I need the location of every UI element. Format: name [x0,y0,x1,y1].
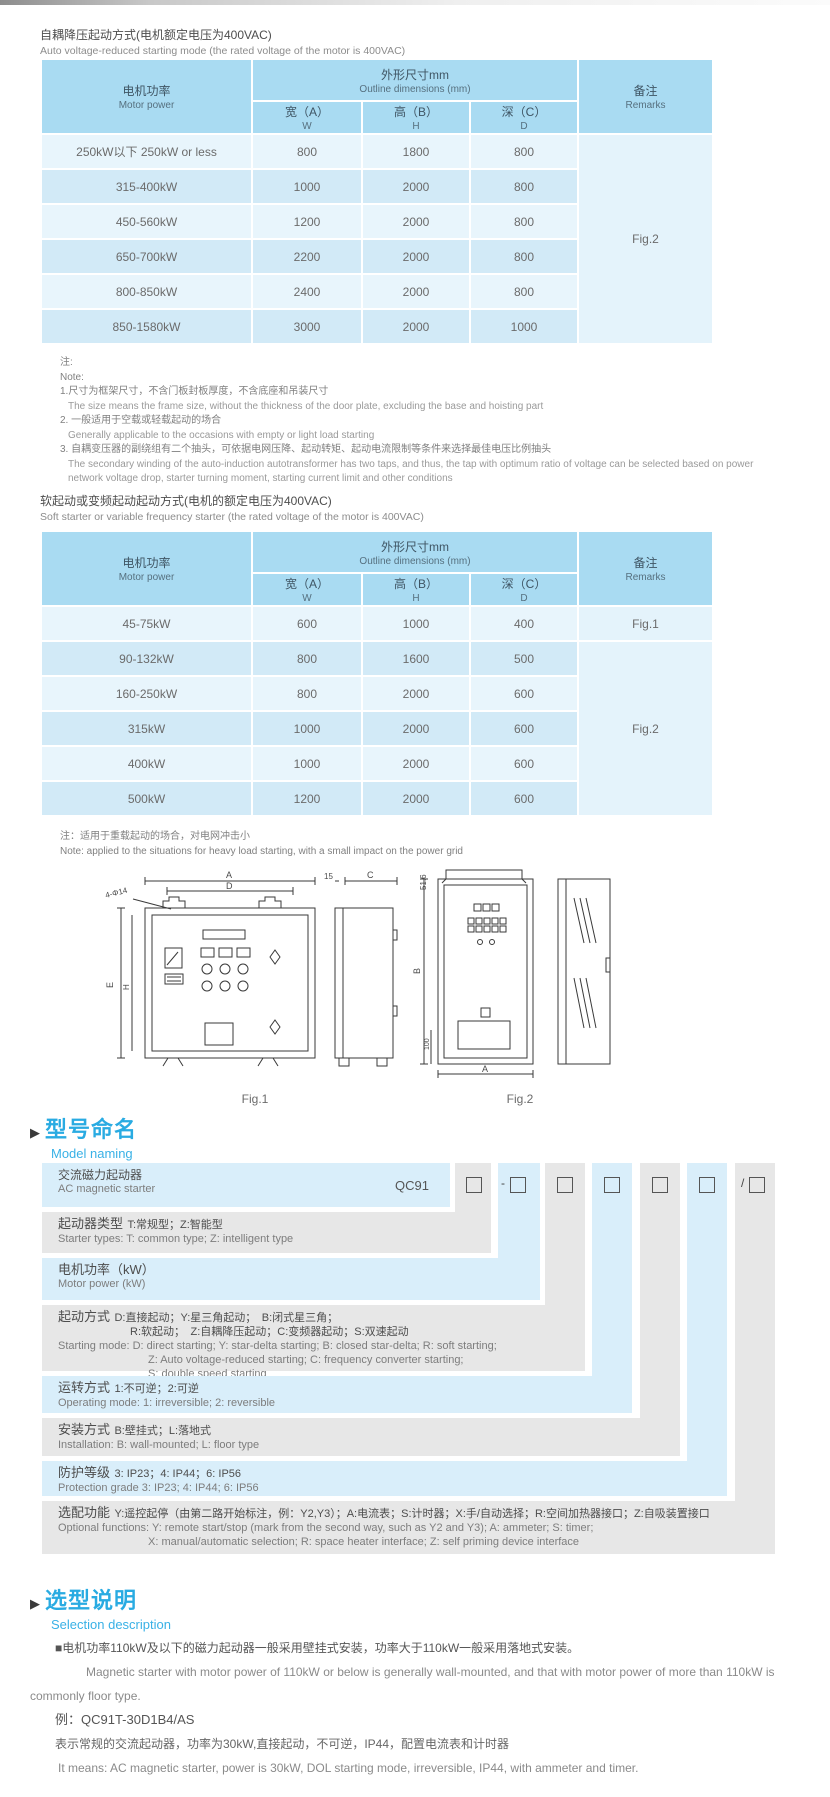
code-box-5 [652,1177,668,1193]
fig2-dim-b-label: B [412,968,422,974]
table-cell-h: 1000 [363,607,469,640]
operating-mode-en: Operating mode: 1: irreversible; 2: reve… [58,1396,632,1410]
table-cell-w: 1000 [253,747,361,780]
header-width-cn: 宽（A） [285,575,329,592]
section2-title: 软起动或变频起动起动方式(电机的额定电压为400VAC) Soft starte… [40,492,424,523]
starting-mode-en2: Z: Auto voltage-reduced starting; C: fre… [148,1353,585,1367]
header-outline-en: Outline dimensions (mm) [359,84,470,95]
auto-reduced-dimensions-table: 电机功率 Motor power 外形尺寸mm Outline dimensio… [42,60,712,343]
starting-mode-en1: Starting mode: D: direct starting; Y: st… [58,1339,585,1353]
table-cell-d: 600 [471,747,577,780]
note1-item2-en: Generally applicable to the occasions wi… [60,429,760,444]
section2-title-cn: 软起动或变频起动起动方式(电机的额定电压为400VAC) [40,492,424,509]
header-outline-en: Outline dimensions (mm) [359,556,470,567]
product-name-cn: 交流磁力起动器 [58,1168,450,1182]
starter-type-en: Starter types: T: common type; Z: intell… [58,1232,491,1246]
table2-remark-fig1: Fig.1 [579,607,712,640]
protection-grade-en: Protection grade 3: IP23; 4: IP44; 6: IP… [58,1481,727,1495]
selection-example-cn: 表示常规的交流起动器，功率为30kW,直接起动，不可逆，IP44，配置电流表和计… [55,1732,802,1756]
fig2-dim-a-label: A [482,1064,488,1074]
header-remarks: 备注 Remarks [579,60,712,133]
fig1-caption: Fig.1 [200,1092,310,1106]
table-cell-h: 2000 [363,205,469,238]
installation-en: Installation: B: wall-mounted; L: floor … [58,1438,680,1452]
optional-functions-en1: Optional functions: Y: remote start/stop… [58,1521,775,1535]
table-cell-w: 2400 [253,275,361,308]
starter-type-label: 起动器类型 [58,1216,123,1231]
selection-p1-en: Magnetic starter with motor power of 110… [30,1660,802,1708]
table-cell-d: 800 [471,275,577,308]
table-cell-power: 850-1580kW [42,310,251,343]
section1-title-en: Auto voltage-reduced starting mode (the … [40,45,405,57]
table-cell-power: 90-132kW [42,642,251,675]
table-cell-w: 1200 [253,782,361,815]
header-remarks: 备注 Remarks [579,532,712,605]
header-height: 高（B） H [363,102,469,133]
naming-row-product: 交流磁力起动器 AC magnetic starter [42,1163,450,1207]
code-box-3 [557,1177,573,1193]
table-cell-d: 600 [471,712,577,745]
note1-item1-en: The size means the frame size, without t… [60,400,760,415]
table-cell-w: 1000 [253,170,361,203]
optional-functions-label: 选配功能 [58,1505,110,1520]
table-cell-d: 800 [471,135,577,168]
header-depth-cn: 深（C） [502,103,547,120]
table-cell-h: 2000 [363,275,469,308]
selection-heading: ▶选型说明 Selection description [30,1583,171,1632]
fig1-dim-d-label: D [226,881,233,891]
fig2-dim-100-label: 100 [424,1038,431,1050]
table-cell-h: 1600 [363,642,469,675]
table-cell-h: 2000 [363,747,469,780]
naming-row-optional-functions: 选配功能 Y:遥控起停（由第二路开始标注，例：Y2,Y3）；A:电流表；S:计时… [42,1501,775,1554]
fig1-dim-c-label: C [367,870,374,880]
installation-desc: B:壁挂式；L:落地式 [114,1425,211,1437]
header-outline-cn: 外形尺寸mm [381,538,449,555]
base-code: QC91 [395,1178,429,1193]
code-col-7-stripe [735,1163,775,1554]
table1-remark-fig2: Fig.2 [579,135,712,343]
table-cell-h: 2000 [363,240,469,273]
starter-type-desc: T:常规型；Z:智能型 [127,1219,222,1231]
fig2-floor-cabinet-drawing: 51.6 B 100 A [408,858,638,1086]
fig1-dim-a-label: A [226,870,232,880]
header-width-en: W [302,593,311,604]
installation-label: 安装方式 [58,1422,110,1437]
header-height-cn: 高（B） [394,575,438,592]
table-cell-h: 2000 [363,310,469,343]
table-cell-h: 2000 [363,782,469,815]
fig1-wall-mounted-drawing: A D 4-Φ14 E H 15 C [105,868,405,1080]
table-cell-w: 2200 [253,240,361,273]
header-motor-power-cn: 电机功率 [122,82,170,99]
table-cell-d: 800 [471,240,577,273]
note1-item2-cn: 2. 一般适用于空载或轻载起动的场合 [60,414,760,429]
section1-title: 自耦降压起动方式(电机额定电压为400VAC) Auto voltage-red… [40,26,405,57]
note1-en-label: Note: [60,371,760,386]
catalog-page: 自耦降压起动方式(电机额定电压为400VAC) Auto voltage-red… [0,0,830,1797]
header-outline: 外形尺寸mm Outline dimensions (mm) [253,532,577,572]
fig1-dim-e-label: E [105,982,115,988]
table-cell-power: 800-850kW [42,275,251,308]
table-cell-power: 315-400kW [42,170,251,203]
table-cell-w: 600 [253,607,361,640]
section-arrow-icon: ▶ [30,1596,40,1611]
selection-example-label: 例：QC91T-30D1B4/AS [55,1708,802,1732]
fig1-holes-label: 4-Φ14 [105,886,129,900]
table-cell-d: 1000 [471,310,577,343]
starting-mode-desc2: R:软起动； Z:自耦降压起动；C:变频器起动；S:双速起动 [130,1325,585,1339]
table-cell-w: 1200 [253,205,361,238]
selection-example-en: It means: AC magnetic starter, power is … [58,1756,802,1780]
table-cell-d: 600 [471,782,577,815]
table-cell-h: 2000 [363,712,469,745]
selection-body: ■电机功率110kW及以下的磁力起动器一般采用壁挂式安装，功率大于110kW一般… [30,1636,802,1780]
fig1-dim-h-label: H [122,984,131,990]
header-outline: 外形尺寸mm Outline dimensions (mm) [253,60,577,100]
header-height-en: H [412,593,419,604]
header-width-cn: 宽（A） [285,103,329,120]
motor-power-en: Motor power (kW) [58,1277,540,1291]
table-cell-h: 2000 [363,170,469,203]
header-depth-cn: 深（C） [502,575,547,592]
starting-mode-desc1: D:直接起动；Y:星三角起动； B:闭式星三角； [114,1312,338,1324]
protection-grade-label: 防护等级 [58,1465,110,1480]
fig1-dim-15-label: 15 [324,872,333,881]
table-cell-d: 500 [471,642,577,675]
table-cell-h: 2000 [363,677,469,710]
code-box-7 [749,1177,765,1193]
note1-item3-cn: 3. 自耦变压器的副绕组有二个抽头，可依据电网压降、起动转矩、起动电流限制等条件… [60,443,760,458]
table-cell-h: 1800 [363,135,469,168]
motor-power-label: 电机功率（kW） [58,1263,540,1277]
table-cell-w: 3000 [253,310,361,343]
header-remarks-en: Remarks [625,100,665,111]
section-arrow-icon: ▶ [30,1125,40,1140]
naming-row-operating-mode: 运转方式 1:不可逆；2:可逆 Operating mode: 1: irrev… [42,1376,632,1413]
code-box-2 [510,1177,526,1193]
table2-remark-fig2: Fig.2 [579,642,712,815]
table-cell-d: 400 [471,607,577,640]
code-col-6-stripe [687,1163,727,1496]
optional-functions-en2: X: manual/automatic selection; R: space … [148,1535,775,1549]
naming-row-installation: 安装方式 B:壁挂式；L:落地式 Installation: B: wall-m… [42,1418,680,1456]
header-depth: 深（C） D [471,102,577,133]
table-cell-power: 450-560kW [42,205,251,238]
model-naming-heading: ▶型号命名 Model naming [30,1112,137,1161]
header-motor-power-en: Motor power [119,572,175,583]
selection-p1-cn: ■电机功率110kW及以下的磁力起动器一般采用壁挂式安装，功率大于110kW一般… [55,1636,802,1660]
selection-title-en: Selection description [51,1617,171,1632]
naming-row-starter-type: 起动器类型 T:常规型；Z:智能型 Starter types: T: comm… [42,1212,491,1253]
header-height: 高（B） H [363,574,469,605]
naming-row-protection-grade: 防护等级 3: IP23；4: IP44；6: IP56 Protection … [42,1461,727,1496]
header-depth: 深（C） D [471,574,577,605]
table-cell-w: 800 [253,677,361,710]
table-cell-power: 400kW [42,747,251,780]
header-remarks-cn: 备注 [633,82,657,99]
header-motor-power: 电机功率 Motor power [42,60,251,133]
section1-title-cn: 自耦降压起动方式(电机额定电压为400VAC) [40,26,405,43]
table-cell-power: 650-700kW [42,240,251,273]
table-cell-power: 250kW以下 250kW or less [42,135,251,168]
section2-title-en: Soft starter or variable frequency start… [40,511,424,523]
header-height-en: H [412,121,419,132]
header-width: 宽（A） W [253,102,361,133]
table-cell-power: 45-75kW [42,607,251,640]
table-cell-power: 500kW [42,782,251,815]
table-cell-d: 600 [471,677,577,710]
code-col-5-stripe [640,1163,680,1456]
header-motor-power-en: Motor power [119,100,175,111]
note-table1: 注: Note: 1.尺寸为框架尺寸，不含门板封板厚度，不含底座和吊装尺寸 Th… [60,356,760,487]
starting-mode-label: 起动方式 [58,1309,110,1324]
note1-item1-cn: 1.尺寸为框架尺寸，不含门板封板厚度，不含底座和吊装尺寸 [60,385,760,400]
operating-mode-desc: 1:不可逆；2:可逆 [114,1383,198,1395]
fig2-caption: Fig.2 [465,1092,575,1106]
code-dash: - [501,1176,505,1190]
code-box-4 [604,1177,620,1193]
optional-functions-desc: Y:遥控起停（由第二路开始标注，例：Y2,Y3）；A:电流表；S:计时器；X:手… [114,1508,709,1520]
header-depth-en: D [520,121,527,132]
table-cell-d: 800 [471,205,577,238]
header-remarks-cn: 备注 [633,554,657,571]
table-cell-w: 800 [253,135,361,168]
table-cell-power: 315kW [42,712,251,745]
model-naming-title-cn: 型号命名 [45,1117,137,1142]
header-motor-power: 电机功率 Motor power [42,532,251,605]
code-slash: / [741,1176,744,1190]
note1-cn-label: 注: [60,356,760,371]
table-cell-w: 800 [253,642,361,675]
naming-row-motor-power: 电机功率（kW） Motor power (kW) [42,1258,540,1300]
header-motor-power-cn: 电机功率 [122,554,170,571]
selection-title-cn: 选型说明 [45,1588,137,1613]
page-top-shadow [0,0,830,5]
header-width-en: W [302,121,311,132]
model-naming-table: 交流磁力起动器 AC magnetic starter QC91 - / 起动器… [42,1163,775,1554]
header-height-cn: 高（B） [394,103,438,120]
operating-mode-label: 运转方式 [58,1380,110,1395]
table-cell-w: 1000 [253,712,361,745]
header-outline-cn: 外形尺寸mm [381,66,449,83]
naming-row-starting-mode: 起动方式 D:直接起动；Y:星三角起动； B:闭式星三角； R:软起动； Z:自… [42,1305,585,1371]
protection-grade-desc: 3: IP23；4: IP44；6: IP56 [114,1468,241,1480]
note2-cn: 注：适用于重载起动的场合，对电网冲击小 [60,830,760,845]
header-depth-en: D [520,593,527,604]
product-name-en: AC magnetic starter [58,1182,450,1196]
note2-en: Note: applied to the situations for heav… [60,845,760,860]
code-box-1 [466,1177,482,1193]
model-naming-title-en: Model naming [51,1146,137,1161]
table-cell-power: 160-250kW [42,677,251,710]
code-box-6 [699,1177,715,1193]
note1-item3-en: The secondary winding of the auto-induct… [60,458,760,487]
note-table2: 注：适用于重载起动的场合，对电网冲击小 Note: applied to the… [60,830,760,859]
header-width: 宽（A） W [253,574,361,605]
soft-start-dimensions-table: 电机功率 Motor power 外形尺寸mm Outline dimensio… [42,532,712,815]
table-cell-d: 800 [471,170,577,203]
header-remarks-en: Remarks [625,572,665,583]
